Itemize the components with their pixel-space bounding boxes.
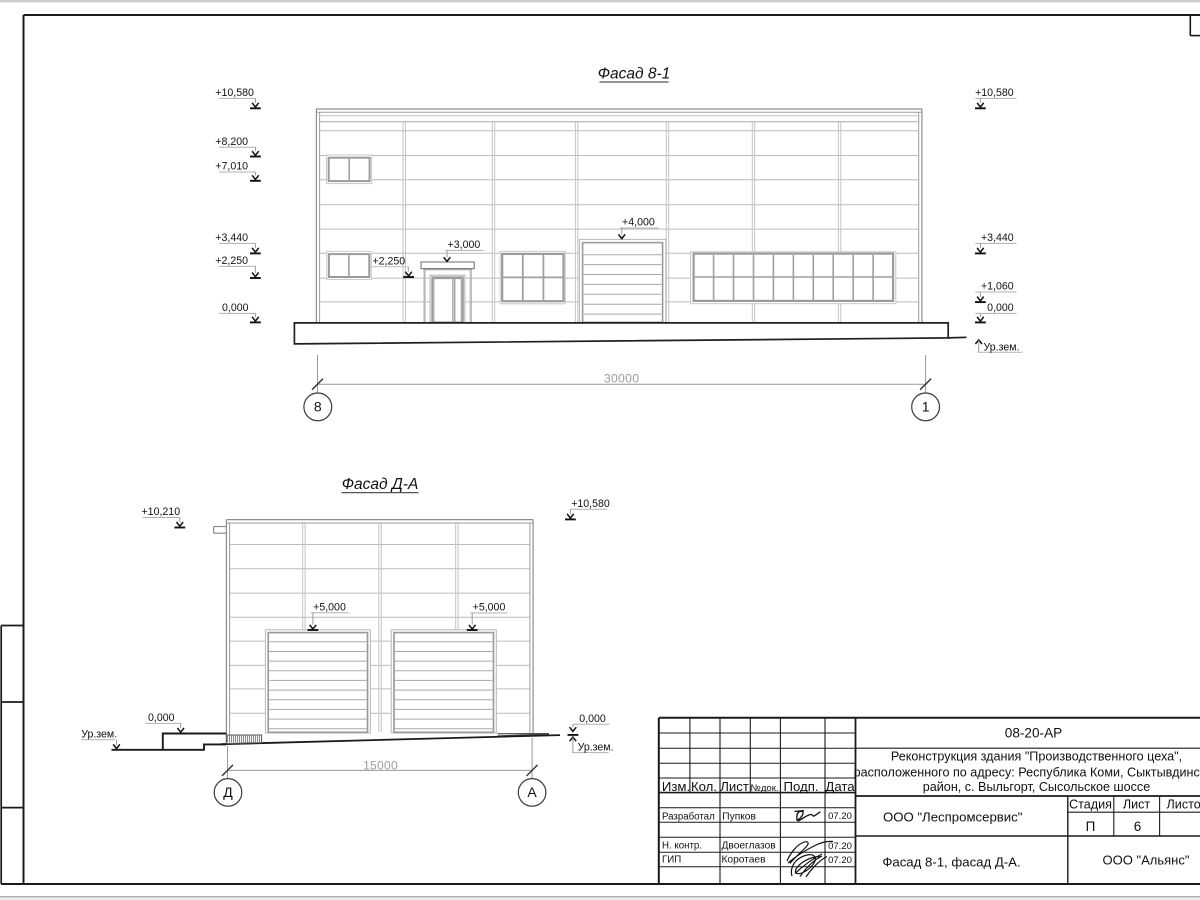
svg-text:0,000: 0,000 [148,712,175,724]
svg-text:Лист: Лист [720,779,749,794]
svg-text:+10,580: +10,580 [571,498,610,510]
svg-text:08-20-АР: 08-20-АР [1005,726,1062,741]
svg-text:Подп.: Подп. [783,779,818,794]
svg-text:ООО "Альянс": ООО "Альянс" [1103,853,1190,868]
svg-text:Д: Д [223,784,233,800]
svg-text:Лист: Лист [1123,798,1151,812]
svg-text:+2,250: +2,250 [215,255,248,267]
svg-text:+3,440: +3,440 [981,232,1014,244]
svg-text:07.20: 07.20 [828,811,852,822]
svg-text:+3,440: +3,440 [215,232,248,244]
svg-text:30000: 30000 [604,372,639,386]
svg-text:Разработал: Разработал [662,811,715,822]
svg-text:+4,000: +4,000 [622,217,655,229]
svg-text:+7,010: +7,010 [215,161,248,173]
svg-text:Стадия: Стадия [1069,798,1112,812]
svg-text:+1,060: +1,060 [981,281,1014,293]
svg-text:район, с. Выльгорт, Сысольское: район, с. Выльгорт, Сысольское шоссе [923,780,1150,794]
svg-text:Коротаев: Коротаев [722,855,766,866]
svg-text:+3,000: +3,000 [448,239,481,251]
svg-text:Листов: Листов [1167,798,1200,812]
svg-text:07.20: 07.20 [828,841,852,852]
svg-text:+10,580: +10,580 [975,87,1014,99]
svg-text:ГИП: ГИП [662,855,681,866]
svg-text:№док.: №док. [751,783,779,794]
svg-text:Фасад 8-1, фасад Д-А.: Фасад 8-1, фасад Д-А. [882,854,1020,869]
svg-text:+8,200: +8,200 [215,136,248,148]
svg-text:Н. контр.: Н. контр. [662,841,702,852]
svg-text:Изм.: Изм. [662,779,690,794]
svg-text:0,000: 0,000 [222,302,249,314]
svg-text:П: П [1086,819,1096,834]
svg-text:Фасад Д-А: Фасад Д-А [342,476,419,493]
svg-text:Двоеглазов: Двоеглазов [722,841,776,852]
svg-text:Ур.зем.: Ур.зем. [81,728,117,740]
svg-text:+2,250: +2,250 [372,255,405,267]
svg-text:0,000: 0,000 [987,302,1014,314]
svg-text:0,000: 0,000 [579,713,606,725]
svg-text:+5,000: +5,000 [473,601,506,613]
svg-text:Пупков: Пупков [722,811,756,822]
svg-text:15000: 15000 [363,758,398,772]
svg-text:А: А [527,784,537,800]
svg-text:ООО "Леспромсервис": ООО "Леспромсервис" [883,809,1023,824]
svg-text:+5,000: +5,000 [313,601,346,613]
svg-text:1: 1 [922,399,930,415]
svg-text:+10,580: +10,580 [215,87,254,99]
svg-text:Фасад 8-1: Фасад 8-1 [598,66,671,83]
svg-text:Реконструкция здания "Производ: Реконструкция здания "Производственного … [891,750,1182,764]
svg-text:+10,210: +10,210 [142,506,181,518]
svg-text:6: 6 [1134,819,1142,834]
svg-text:07.20: 07.20 [828,855,852,866]
svg-text:8: 8 [314,399,322,415]
svg-text:Ур.зем.: Ур.зем. [578,741,614,753]
svg-text:Кол.: Кол. [691,779,717,794]
svg-text:расположенного по адресу: Респ: расположенного по адресу: Республика Ком… [854,765,1200,779]
svg-text:Ур.зем.: Ур.зем. [984,342,1020,354]
svg-text:Дата: Дата [825,779,855,794]
